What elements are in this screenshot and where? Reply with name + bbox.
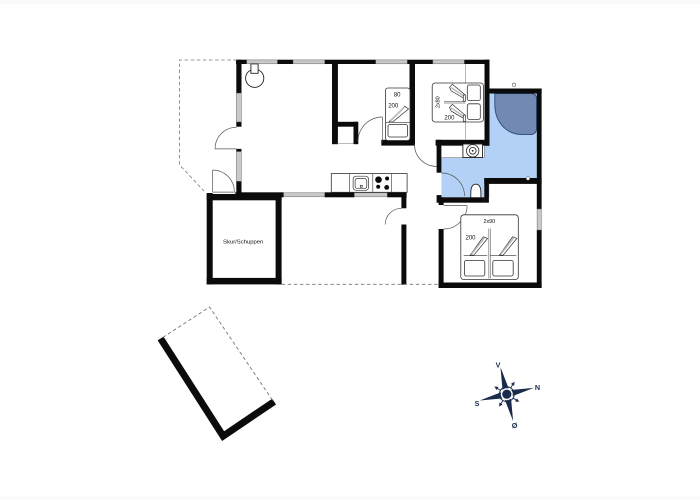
svg-text:200: 200: [388, 103, 399, 109]
svg-text:Skur/Schuppen: Skur/Schuppen: [223, 239, 263, 245]
svg-text:2x90: 2x90: [484, 219, 496, 225]
svg-text:Ø: Ø: [512, 421, 518, 430]
svg-text:S: S: [475, 399, 480, 408]
svg-text:80: 80: [394, 92, 401, 98]
svg-text:N: N: [535, 383, 540, 392]
svg-text:V: V: [496, 361, 501, 370]
svg-text:200: 200: [465, 236, 476, 242]
svg-text:2x80: 2x80: [435, 96, 441, 108]
svg-text:200: 200: [444, 115, 455, 121]
